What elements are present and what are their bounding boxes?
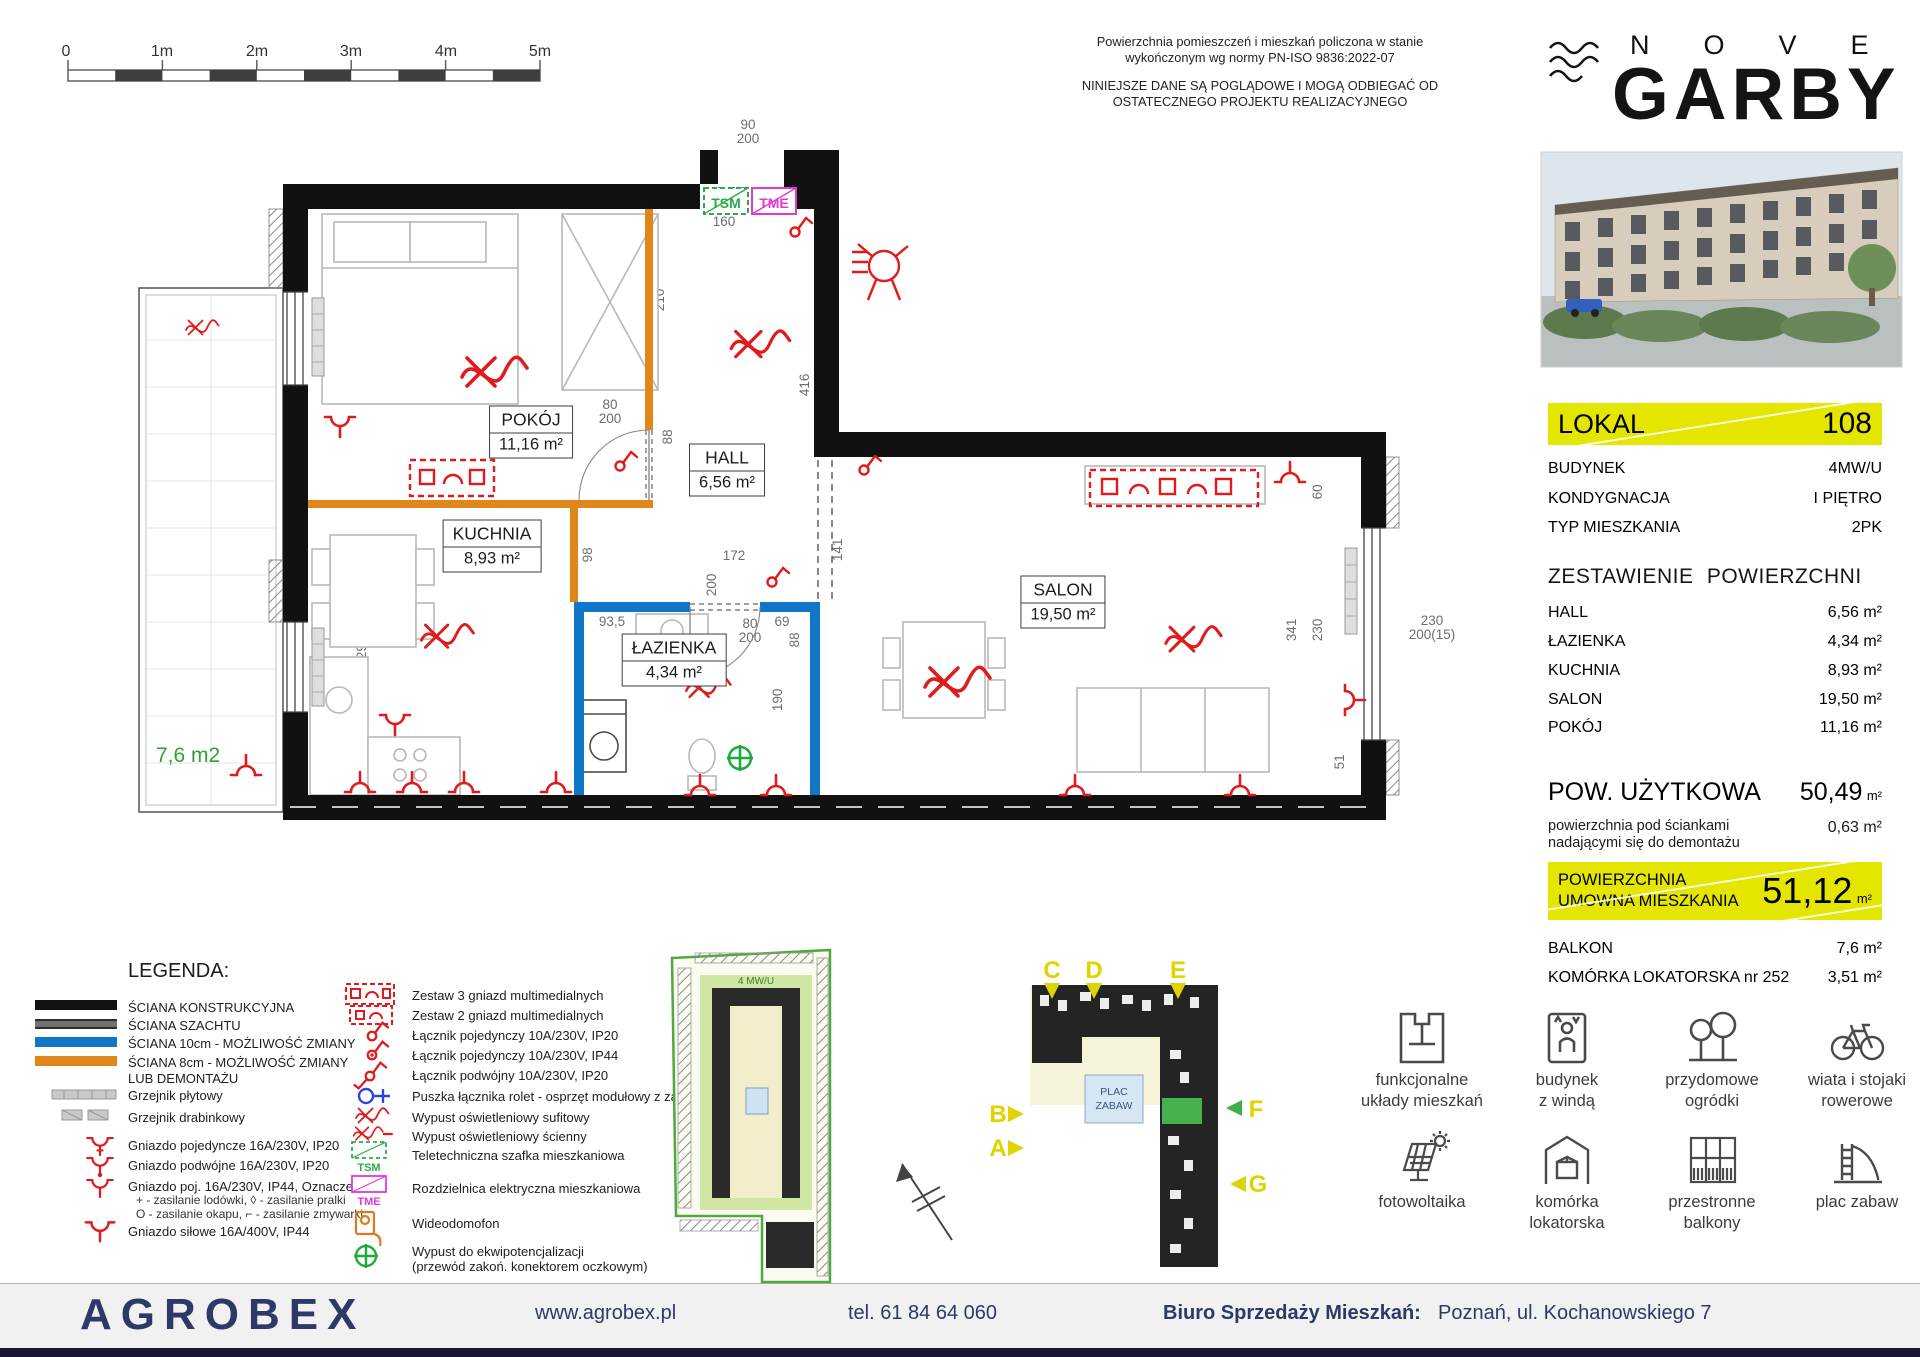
scale-tick-label: 4m bbox=[435, 43, 457, 60]
usable-area-value: 50,49 bbox=[1800, 778, 1863, 806]
areas-title: ZESTAWIENIE POWIERZCHNI bbox=[1548, 565, 1862, 589]
room-name: HALL bbox=[1548, 604, 1588, 622]
marker-letter: E bbox=[1170, 957, 1186, 984]
field-value: I PIĘTRO bbox=[1814, 490, 1882, 508]
scale-tick-label: 3m bbox=[340, 43, 362, 60]
room-area: 11,16 m² bbox=[1820, 719, 1882, 737]
usable-area-row: POW. UŻYTKOWA 50,49 m² bbox=[1548, 778, 1882, 807]
tsm-cabinet: TSM bbox=[704, 188, 748, 214]
room-area: 8,93 m² bbox=[1828, 662, 1882, 680]
building-photo bbox=[1541, 152, 1902, 367]
legend-tme-icon: TME bbox=[352, 1176, 386, 1208]
field-value: 2PK bbox=[1852, 519, 1882, 537]
disclaimer-line: wykończonym wg normy PN-ISO 9836:2022-07 bbox=[1080, 50, 1440, 66]
balcony-area-label: 7,6 m2 bbox=[156, 744, 220, 768]
extra-label: BALKON bbox=[1548, 940, 1613, 958]
marker-letter: G bbox=[1249, 1171, 1268, 1198]
compass-icon bbox=[896, 1164, 952, 1240]
usable-area-label: POW. UŻYTKOWA bbox=[1548, 778, 1761, 807]
extra-row: KOMÓRKA LOKATORSKA nr 252 3,51 m² bbox=[1548, 969, 1882, 987]
field-row: BUDYNEK 4MW/U bbox=[1548, 460, 1882, 478]
scale-tick-label: 1m bbox=[151, 43, 173, 60]
svg-text:TME: TME bbox=[759, 195, 789, 211]
room-row: HALL 6,56 m² bbox=[1548, 604, 1882, 622]
equipotential-outlet bbox=[727, 745, 753, 771]
contract-value: 51,12 bbox=[1762, 870, 1852, 911]
extra-value: 7,6 m² bbox=[1837, 940, 1882, 958]
svg-text:TSM: TSM bbox=[357, 1162, 380, 1174]
field-row: TYP MIESZKANIA 2PK bbox=[1548, 519, 1882, 537]
plan-room-label: POKÓJ 11,16 m² bbox=[489, 406, 573, 459]
scale-tick-label: 2m bbox=[246, 43, 268, 60]
scale-tick-label: 0 bbox=[62, 43, 71, 60]
disclaimer-line: OSTATECZNEGO PROJEKTU REALIZACYJNEGO bbox=[1080, 94, 1440, 110]
room-name: POKÓJ bbox=[1548, 719, 1602, 737]
marker-letter: B bbox=[989, 1101, 1006, 1128]
extra-value: 3,51 m² bbox=[1828, 969, 1882, 987]
opening-hall-salon bbox=[818, 460, 832, 600]
room-row: POKÓJ 11,16 m² bbox=[1548, 719, 1882, 737]
svg-text:ZABAW: ZABAW bbox=[1096, 1100, 1133, 1112]
demolish-label: powierzchnia pod ściankami nadającymi si… bbox=[1548, 818, 1740, 853]
marker-letter: D bbox=[1085, 957, 1102, 984]
marker-letter: C bbox=[1043, 957, 1060, 984]
plan-room-label: HALL 6,56 m² bbox=[689, 444, 765, 497]
site-plan-map: 4 MW/U bbox=[672, 950, 830, 1282]
washer bbox=[582, 700, 626, 772]
svg-text:TSM: TSM bbox=[711, 195, 741, 211]
contract-area-block: POWIERZCHNIA UMOWNA MIESZKANIA 51,12 m² bbox=[1548, 862, 1882, 920]
extra-label: KOMÓRKA LOKATORSKA nr 252 bbox=[1548, 969, 1789, 987]
site-building-tag: 4 MW/U bbox=[738, 976, 774, 987]
room-name: SALON bbox=[1548, 691, 1602, 709]
field-label: TYP MIESZKANIA bbox=[1548, 519, 1680, 537]
room-area: 6,56 m² bbox=[1828, 604, 1882, 622]
demolish-value: 0,63 m² bbox=[1828, 818, 1882, 853]
equipotential-legend-icon bbox=[354, 1244, 378, 1268]
floorplan-document: 0 1m 2m 3m 4m 5m bbox=[0, 0, 1920, 1357]
marker-letter: A bbox=[989, 1135, 1006, 1162]
brand-garby: GARBY bbox=[1612, 53, 1901, 136]
lokal-header: LOKAL 108 bbox=[1548, 403, 1882, 445]
room-name: KUCHNIA bbox=[1548, 662, 1620, 680]
roller-box-icon bbox=[359, 1089, 390, 1103]
lokal-number: 108 bbox=[1822, 407, 1872, 441]
room-area: 19,50 m² bbox=[1819, 691, 1882, 709]
room-row: SALON 19,50 m² bbox=[1548, 691, 1882, 709]
legend-tsm-icon: TSM bbox=[352, 1142, 386, 1174]
room-row: KUCHNIA 8,93 m² bbox=[1548, 662, 1882, 680]
building-locator-map: PLAC ZABAW C D E B A F G bbox=[989, 957, 1267, 1267]
scale-tick-label: 5m bbox=[529, 43, 551, 60]
plan-room-label: SALON 19,50 m² bbox=[1020, 576, 1105, 629]
svg-text:PLAC: PLAC bbox=[1100, 1086, 1128, 1098]
lokal-label: LOKAL bbox=[1558, 409, 1645, 440]
scale-bar: 0 1m 2m 3m 4m 5m bbox=[62, 43, 552, 81]
room-area: 4,34 m² bbox=[1828, 633, 1882, 651]
svg-text:TME: TME bbox=[357, 1196, 380, 1208]
marker-letter: F bbox=[1249, 1096, 1264, 1123]
field-row: KONDYGNACJA I PIĘTRO bbox=[1548, 490, 1882, 508]
balcony bbox=[139, 288, 283, 812]
demolish-row: powierzchnia pod ściankami nadającymi si… bbox=[1548, 818, 1882, 853]
disclaimer: Powierzchnia pomieszczeń i mieszkań poli… bbox=[1080, 34, 1440, 110]
tme-cabinet: TME bbox=[752, 188, 796, 214]
plan-room-label: KUCHNIA 8,93 m² bbox=[443, 520, 542, 573]
field-value: 4MW/U bbox=[1829, 460, 1882, 478]
videophone-icon bbox=[356, 1212, 380, 1246]
field-label: KONDYGNACJA bbox=[1548, 490, 1670, 508]
contract-label: POWIERZCHNIA UMOWNA MIESZKANIA bbox=[1558, 870, 1739, 911]
legend-icons: TSM TME bbox=[52, 984, 394, 1268]
extra-row: BALKON 7,6 m² bbox=[1548, 940, 1882, 958]
field-label: BUDYNEK bbox=[1548, 460, 1625, 478]
plan-room-label: ŁAZIENKA 4,34 m² bbox=[622, 634, 727, 687]
room-row: ŁAZIENKA 4,34 m² bbox=[1548, 633, 1882, 651]
legend-title: LEGENDA: bbox=[128, 960, 229, 983]
disclaimer-line: Powierzchnia pomieszczeń i mieszkań poli… bbox=[1080, 34, 1440, 50]
logo-waves-icon bbox=[1550, 43, 1598, 81]
room-name: ŁAZIENKA bbox=[1548, 633, 1625, 651]
disclaimer-line: NINIEJSZE DANE SĄ POGLĄDOWE I MOGĄ ODBIE… bbox=[1080, 78, 1440, 94]
